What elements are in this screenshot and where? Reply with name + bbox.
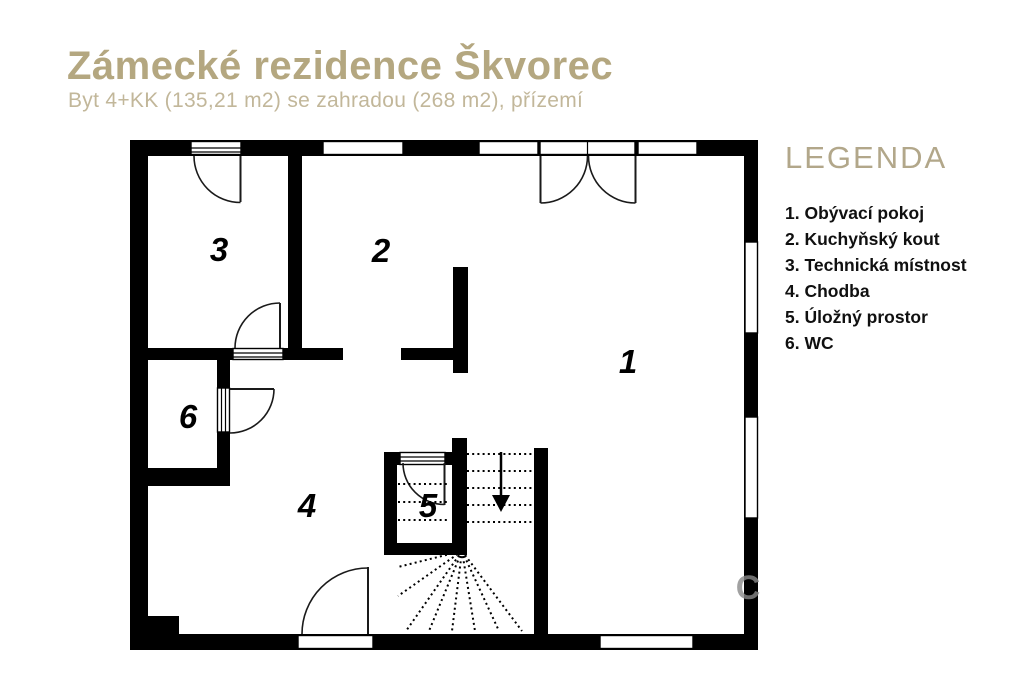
floorplan-drawing: 1 2 3 4 5 6 C — [0, 0, 1024, 683]
window — [479, 142, 538, 155]
room-label-3: 3 — [210, 231, 228, 268]
room-label-5: 5 — [419, 487, 438, 524]
window — [638, 142, 697, 155]
room-label-6: 6 — [179, 398, 198, 435]
stairs-down-arrow-icon — [492, 452, 510, 512]
window — [745, 242, 758, 333]
door-sill — [233, 349, 283, 360]
door-swing — [230, 389, 274, 433]
room-labels: 1 2 3 4 5 6 — [179, 231, 637, 524]
french-door-swing — [589, 156, 636, 203]
room-label-4: 4 — [297, 487, 316, 524]
room-label-1: 1 — [619, 343, 637, 380]
winder-steps — [398, 551, 522, 631]
watermark-letter: C — [736, 569, 761, 607]
french-door-swing — [541, 156, 588, 203]
door-swing — [194, 156, 241, 203]
floorplan-page: Zámecké rezidence Škvorec Byt 4+KK (135,… — [0, 0, 1024, 683]
window — [745, 417, 758, 518]
door-sill — [400, 453, 445, 465]
door-thresholds — [191, 142, 635, 649]
corner-pier — [148, 616, 179, 634]
window — [600, 636, 693, 649]
door-swing — [235, 303, 280, 348]
door-sill — [218, 388, 230, 432]
interior-walls — [148, 156, 548, 634]
entrance-door-swing — [302, 568, 368, 634]
window — [323, 142, 403, 155]
room-label-2: 2 — [371, 232, 391, 269]
entrance-door-sill — [298, 636, 373, 649]
